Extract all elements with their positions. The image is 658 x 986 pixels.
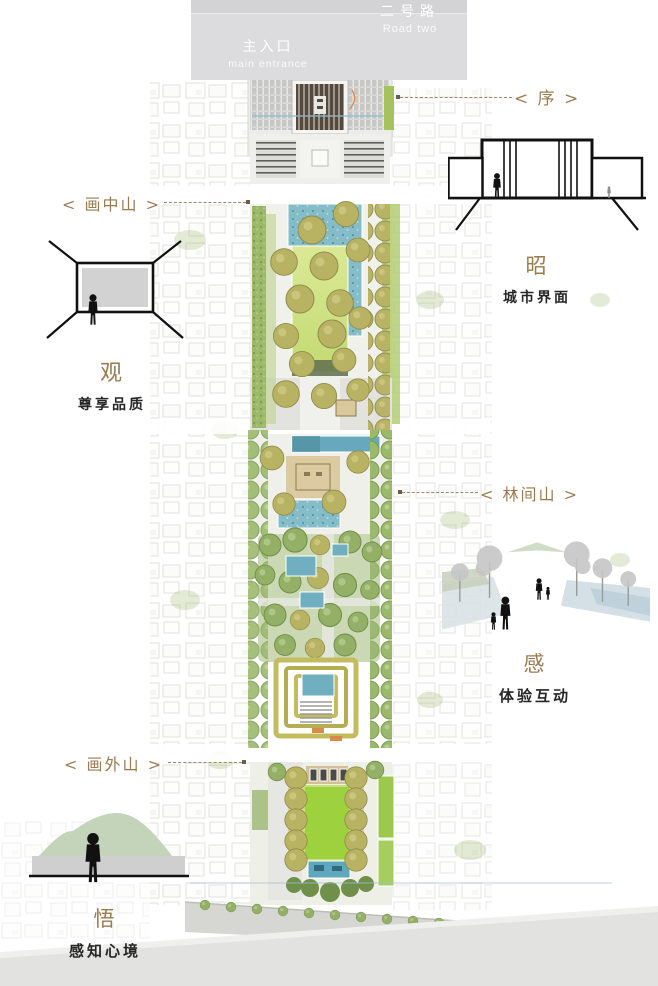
legend-guan-subtitle: 尊享品质 (52, 394, 172, 414)
leader-line-xu (400, 97, 512, 98)
main-entrance-en: main entrance (208, 58, 328, 70)
legend-guan: 观 尊享品质 (52, 355, 172, 414)
legend-wu-subtitle: 感知心境 (45, 940, 165, 961)
person-silhouette (88, 294, 97, 324)
leader-dot-hua-wai-shan (242, 760, 246, 764)
main-entrance-label: 主入口 main entrance (208, 36, 328, 70)
legend-guan-title: 观 (52, 355, 172, 387)
legend-zhao: 昭 城市界面 (477, 250, 597, 307)
person-child-far (546, 587, 550, 600)
callout-lin-jian-shan: < 林间山 > (480, 481, 579, 505)
road-two-cn: 二号路 (345, 1, 475, 21)
legend-zhao-subtitle: 城市界面 (477, 287, 597, 307)
terraced-hedges (276, 660, 356, 741)
legend-gan-subtitle: 体验互动 (475, 685, 595, 706)
legend-wu-title: 悟 (45, 903, 165, 933)
person-adult-far (536, 578, 543, 599)
callout-xu: < 序 > (514, 84, 580, 109)
entrance-complex (248, 72, 394, 184)
leader-line-lin-jian-shan (402, 492, 478, 493)
gate-elevation-sketch (448, 132, 648, 242)
forest-walk-sketch (442, 522, 650, 648)
callout-hua-wai-shan: < 画外山 > (64, 751, 163, 775)
leader-dot-lin-jian-shan (398, 490, 402, 494)
main-entrance-cn: 主入口 (208, 36, 328, 56)
leader-line-hua-zhong-shan (164, 202, 246, 203)
forest-garden (255, 528, 382, 662)
legend-wu: 悟 感知心境 (45, 903, 165, 961)
person-adult (500, 597, 510, 630)
masterplan-diagram: 二号路 Road two 主入口 main entrance < 序 > < 画… (0, 0, 658, 986)
leader-dot-xu (396, 95, 400, 99)
leader-line-hua-wai-shan (168, 762, 242, 763)
person-child (491, 612, 496, 629)
framed-view-sketch (35, 230, 195, 350)
courtyard-lawn-water (250, 201, 400, 430)
legend-gan: 感 体验互动 (475, 648, 595, 706)
mountain-sketch (25, 800, 195, 900)
road-two-en: Road two (345, 23, 475, 35)
callout-hua-zhong-shan: < 画中山 > (62, 191, 161, 215)
legend-gan-title: 感 (475, 648, 595, 678)
leader-dot-hua-zhong-shan (246, 200, 250, 204)
road-two-label: 二号路 Road two (345, 1, 475, 35)
legend-zhao-title: 昭 (477, 250, 597, 280)
